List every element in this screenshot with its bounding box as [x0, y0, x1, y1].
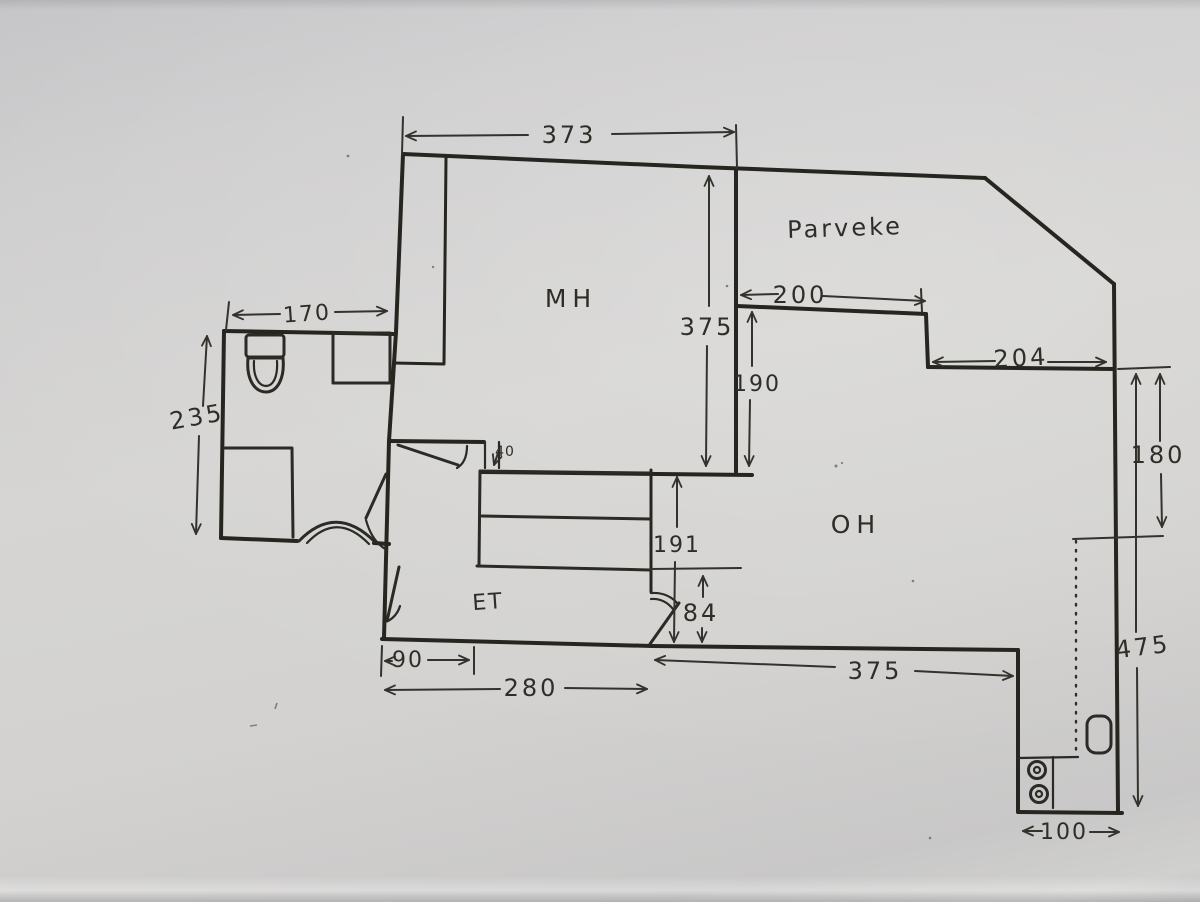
- dim-label-40: 40: [495, 444, 515, 460]
- dim-line-280: [385, 689, 500, 690]
- wall-balcony-bottom: [737, 306, 926, 314]
- wall-top: [403, 154, 985, 178]
- et-oh-door-arc-inner: [651, 599, 673, 609]
- knob-icon: [1029, 762, 1046, 779]
- washing-machine: [224, 448, 293, 537]
- wardrobe-left: [479, 471, 480, 566]
- wall-mh-door-stub: [390, 441, 484, 442]
- room-label-mh: MH: [545, 284, 597, 313]
- wall-bath-bottom-right: [374, 543, 389, 544]
- wardrobe-shelf-line: [482, 516, 651, 519]
- dim-line-235: [196, 436, 199, 534]
- walls: [221, 154, 1170, 813]
- dim-label-90: 90: [392, 648, 424, 673]
- wall-balcony-step: [926, 314, 928, 367]
- wall-bath-left: [221, 331, 224, 538]
- knob-icon: [1031, 786, 1048, 803]
- dim-label-84: 84: [683, 599, 720, 627]
- dim-line-170: [335, 311, 387, 312]
- dim-label-190: 190: [733, 372, 781, 397]
- wardrobe-bottom: [477, 566, 650, 570]
- dim-line-190: [749, 400, 750, 466]
- wall-mh-closet-bottom: [394, 363, 444, 364]
- dim-line-475: [1137, 668, 1138, 806]
- counter-edge-line: [651, 568, 741, 569]
- dim-tick: [402, 117, 403, 154]
- door-handle-icon: [1087, 716, 1111, 753]
- dim-line-191: [674, 562, 675, 642]
- floor-plan-photo: MH Parveke OH ET 373 375 200 190 204 180…: [0, 0, 1200, 902]
- dim-label-200: 200: [773, 281, 828, 309]
- dim-line-373: [406, 135, 528, 136]
- dim-tick: [381, 646, 382, 676]
- toilet-tank: [246, 335, 284, 357]
- reference-line-538: [1073, 536, 1163, 539]
- dim-line-375-mh: [706, 346, 707, 466]
- wall-bottom-right: [1018, 812, 1122, 813]
- room-label-oh: OH: [831, 510, 881, 539]
- dim-label-191: 191: [653, 533, 701, 558]
- room-label-et: ET: [472, 589, 505, 616]
- wall-left: [384, 154, 403, 638]
- wall-bath-bottom-left: [221, 538, 297, 541]
- dim-line-280: [565, 688, 647, 689]
- dim-label-235: 235: [168, 398, 227, 435]
- dim-line-204: [933, 361, 995, 362]
- room-label-parveke: Parveke: [787, 212, 904, 244]
- entry-door: [387, 567, 400, 621]
- dim-tick: [921, 289, 922, 312]
- paper-specks: [250, 155, 931, 840]
- dim-line-200: [823, 296, 925, 301]
- bath-door-leaf: [366, 474, 386, 518]
- mh-door: [398, 445, 467, 468]
- kitchen-nook: [1018, 536, 1163, 808]
- dim-line-375-oh: [655, 660, 835, 667]
- dim-label-204: 204: [993, 343, 1049, 374]
- knob-center-icon: [1034, 767, 1040, 773]
- dim-line-373: [612, 132, 734, 134]
- wardrobe-top: [480, 471, 651, 473]
- dim-label-373-top: 373: [542, 121, 597, 149]
- dim-line-235: [203, 336, 207, 406]
- dim-label-475: 475: [1114, 630, 1172, 664]
- wall-mh-closet-right: [444, 158, 446, 363]
- dim-label-375-mh: 375: [680, 313, 735, 341]
- wall-balcony-diagonal: [985, 178, 1114, 284]
- bath-arch-door-swing: [299, 522, 375, 544]
- dim-label-180: 180: [1131, 441, 1186, 469]
- dim-line-375-oh: [915, 671, 1013, 676]
- dim-label-100: 100: [1040, 820, 1088, 845]
- knob-center-icon: [1036, 791, 1042, 797]
- dim-label-170: 170: [282, 300, 332, 328]
- nook-top-line: [1018, 757, 1078, 758]
- fixtures: [224, 333, 1163, 808]
- dim-line-180: [1161, 474, 1162, 527]
- dim-tick: [226, 302, 229, 330]
- dim-reference-line-right: [1118, 367, 1170, 369]
- et-wardrobe: [477, 471, 651, 570]
- bath-door: [366, 474, 387, 550]
- bath-sink-unit: [333, 333, 390, 383]
- dim-label-375-oh: 375: [848, 657, 903, 685]
- toilet: [246, 335, 284, 392]
- dim-label-280: 280: [504, 674, 559, 702]
- wall-right: [1114, 284, 1118, 812]
- mh-door-leaf: [398, 445, 458, 465]
- wall-bottom: [382, 639, 1018, 650]
- dim-tick: [736, 125, 737, 168]
- toilet-bowl-inner: [254, 361, 277, 386]
- floor-plan-drawing: MH Parveke OH ET 373 375 200 190 204 180…: [0, 0, 1200, 902]
- dim-line-170: [233, 314, 280, 315]
